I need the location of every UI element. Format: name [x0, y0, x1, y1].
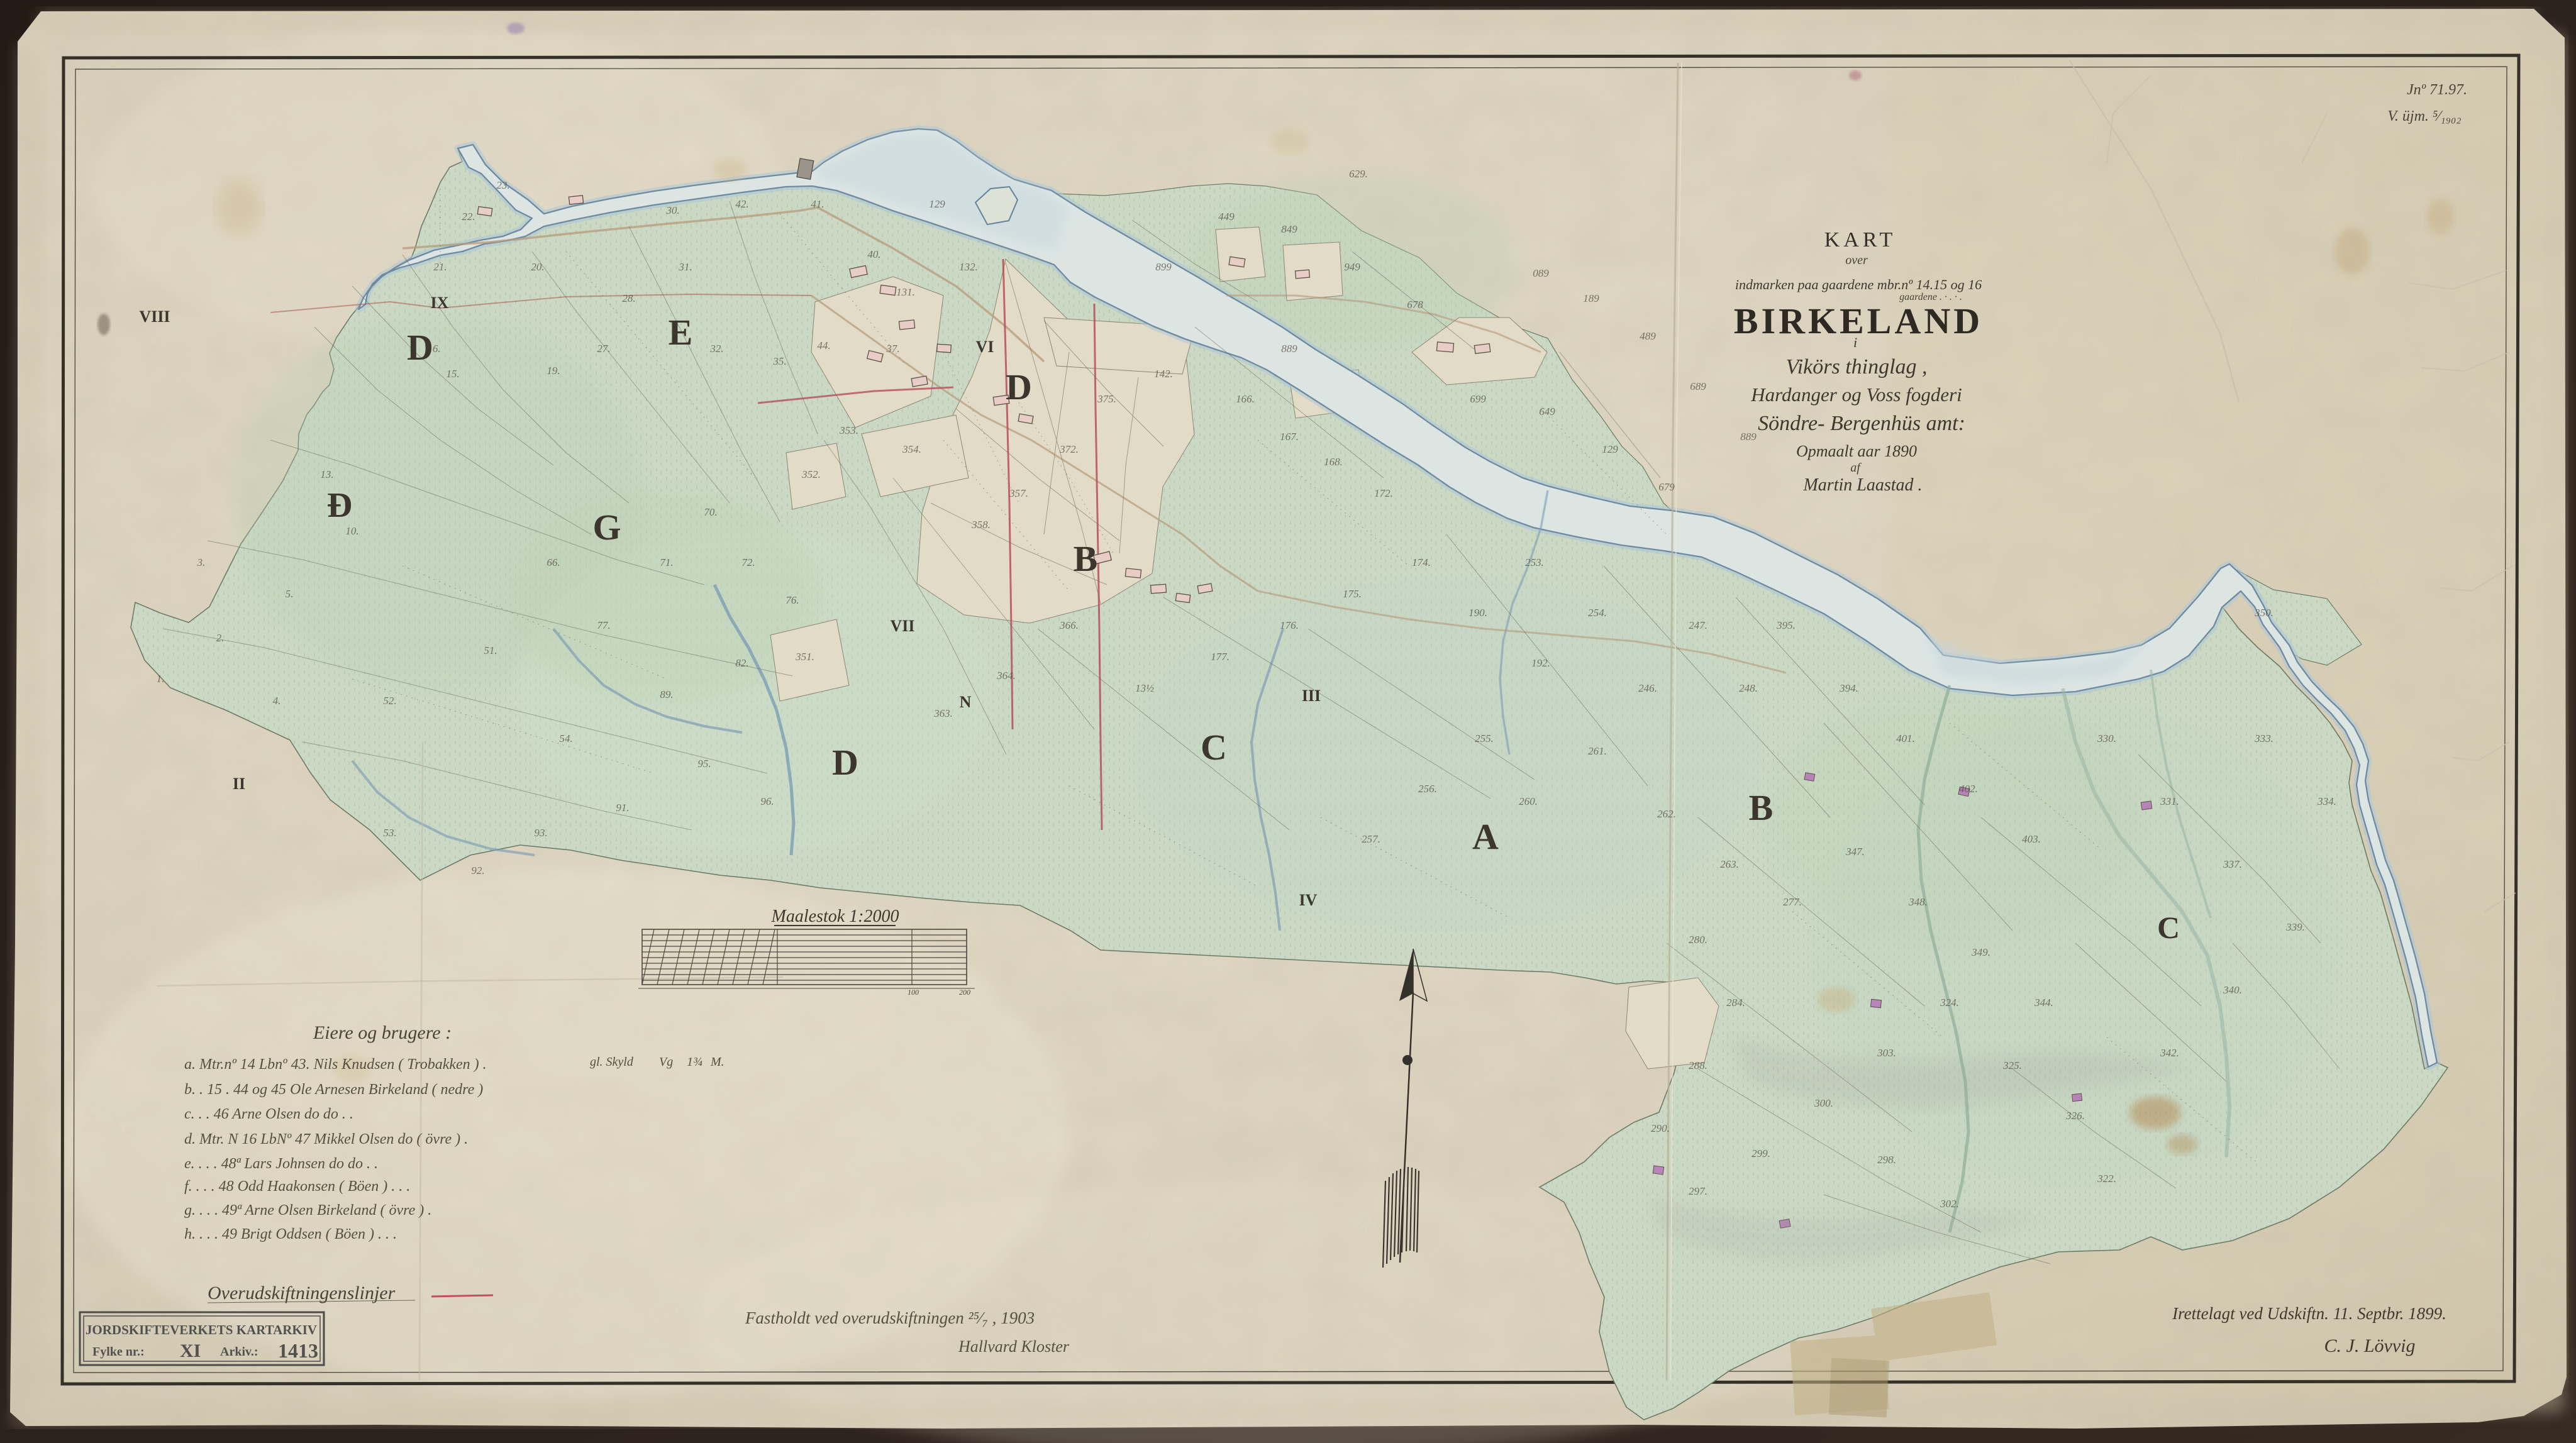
- svg-text:Arkiv.:: Arkiv.:: [220, 1345, 258, 1359]
- svg-text:1413: 1413: [278, 1339, 318, 1362]
- svg-text:KART: KART: [1824, 228, 1897, 252]
- svg-text:G: G: [592, 507, 621, 548]
- svg-text:2.: 2.: [216, 632, 225, 644]
- svg-text:324.: 324.: [1940, 997, 1959, 1009]
- svg-text:Vikörs thinglag ,: Vikörs thinglag ,: [1785, 355, 1927, 379]
- svg-text:71.: 71.: [660, 556, 673, 568]
- svg-text:20.: 20.: [531, 261, 544, 273]
- svg-text:Fylke nr.:: Fylke nr.:: [92, 1345, 145, 1359]
- svg-text:53.: 53.: [383, 827, 396, 839]
- svg-text:95.: 95.: [697, 758, 711, 770]
- svg-text:253.: 253.: [1525, 556, 1544, 568]
- svg-text:299.: 299.: [1752, 1147, 1770, 1159]
- svg-text:303.: 303.: [1877, 1047, 1896, 1059]
- svg-text:54.: 54.: [559, 733, 572, 744]
- svg-text:131.: 131.: [896, 286, 915, 298]
- svg-text:D: D: [407, 327, 433, 368]
- svg-text:403.: 403.: [2022, 833, 2041, 845]
- svg-text:248.: 248.: [1739, 682, 1758, 694]
- svg-text:Hallvard Kloster: Hallvard Kloster: [958, 1337, 1070, 1356]
- svg-text:1.: 1.: [157, 673, 165, 685]
- svg-text:VII: VII: [890, 617, 914, 635]
- svg-text:af: af: [1850, 461, 1862, 475]
- svg-text:449: 449: [1218, 211, 1235, 223]
- svg-text:Hardanger og Voss fogderi: Hardanger og Voss fogderi: [1750, 384, 1962, 406]
- svg-text:489: 489: [1640, 330, 1656, 342]
- svg-text:297.: 297.: [1689, 1185, 1707, 1197]
- svg-text:261.: 261.: [1588, 745, 1607, 757]
- svg-text:76.: 76.: [786, 594, 799, 606]
- svg-text:100: 100: [908, 988, 919, 997]
- svg-text:277.: 277.: [1783, 896, 1802, 908]
- svg-text:D: D: [832, 742, 858, 783]
- svg-text:72.: 72.: [741, 556, 755, 568]
- svg-text:32.: 32.: [709, 343, 723, 355]
- svg-text:284.: 284.: [1726, 997, 1745, 1009]
- svg-text:351.: 351.: [795, 651, 814, 663]
- svg-text:e. . . . 48ª: e. . . . 48ª Lars Johnsen do do . .: [184, 1156, 378, 1172]
- svg-text:176.: 176.: [1280, 619, 1299, 631]
- svg-text:IV: IV: [1299, 891, 1318, 909]
- svg-text:Maalestok 1:2000: Maalestok 1:2000: [771, 907, 899, 926]
- svg-text:372.: 372.: [1059, 443, 1079, 455]
- svg-text:699: 699: [1470, 393, 1486, 405]
- svg-text:889: 889: [1740, 431, 1757, 443]
- svg-text:93.: 93.: [534, 827, 547, 839]
- svg-text:342.: 342.: [2160, 1047, 2179, 1059]
- svg-text:331.: 331.: [2160, 795, 2179, 807]
- svg-text:91.: 91.: [616, 802, 629, 814]
- svg-text:10.: 10.: [345, 525, 358, 537]
- svg-text:13½: 13½: [1135, 682, 1154, 694]
- svg-text:337.: 337.: [2223, 858, 2242, 870]
- svg-text:V. üjm. ⁵⁄₁₉₀₂: V. üjm. ⁵⁄₁₉₀₂: [2387, 108, 2461, 124]
- svg-text:247.: 247.: [1689, 619, 1707, 631]
- svg-text:256.: 256.: [1418, 783, 1437, 795]
- svg-text:BIRKELAND: BIRKELAND: [1734, 301, 1983, 341]
- svg-text:D: D: [1006, 367, 1032, 407]
- svg-text:889: 889: [1281, 343, 1297, 355]
- svg-text:5.: 5.: [286, 588, 294, 600]
- svg-text:200: 200: [959, 988, 970, 997]
- svg-text:366.: 366.: [1059, 619, 1079, 631]
- svg-text:JORDSKIFTEVERKETS KARTARKIV: JORDSKIFTEVERKETS KARTARKIV: [86, 1322, 317, 1337]
- svg-text:129: 129: [929, 198, 945, 210]
- svg-text:Opmaalt aar 1890: Opmaalt aar 1890: [1796, 442, 1917, 460]
- svg-text:344.: 344.: [2034, 997, 2053, 1009]
- svg-text:325.: 325.: [2002, 1059, 2022, 1071]
- svg-text:C. J. Lövvig: C. J. Lövvig: [2324, 1335, 2416, 1356]
- svg-text:949: 949: [1344, 261, 1360, 273]
- svg-text:f. . . . 48: f. . . . 48 Odd Haakonsen ( Böen ) . . .: [184, 1178, 410, 1195]
- svg-text:B: B: [1749, 787, 1774, 828]
- svg-text:21.: 21.: [433, 261, 447, 273]
- svg-text:190.: 190.: [1468, 607, 1487, 619]
- svg-text:b. . 15 . 44 og: b. . 15 . 44 og 45 Ole Arnesen Birkeland…: [184, 1081, 483, 1098]
- svg-text:19.: 19.: [547, 365, 560, 377]
- svg-text:394.: 394.: [1839, 682, 1858, 694]
- svg-text:30.: 30.: [665, 204, 679, 216]
- svg-text:089: 089: [1533, 267, 1549, 279]
- svg-text:263.: 263.: [1720, 858, 1739, 870]
- svg-text:N: N: [960, 693, 972, 711]
- svg-text:174.: 174.: [1412, 556, 1431, 568]
- svg-text:255.: 255.: [1475, 733, 1494, 744]
- svg-text:649: 649: [1539, 406, 1555, 417]
- svg-text:4.: 4.: [273, 695, 281, 707]
- svg-text:Overudskiftningenslinjer: Overudskiftningenslinjer: [208, 1283, 396, 1303]
- svg-text:899: 899: [1155, 261, 1172, 273]
- svg-text:290.: 290.: [1651, 1122, 1670, 1134]
- svg-text:70.: 70.: [704, 506, 717, 518]
- svg-text:333.: 333.: [2254, 733, 2273, 744]
- svg-text:41.: 41.: [811, 198, 824, 210]
- svg-text:13.: 13.: [320, 468, 333, 480]
- svg-text:192.: 192.: [1531, 657, 1550, 669]
- svg-text:678: 678: [1407, 299, 1423, 311]
- svg-text:375.: 375.: [1097, 393, 1116, 405]
- svg-text:82.: 82.: [735, 657, 748, 669]
- svg-text:254.: 254.: [1588, 607, 1607, 619]
- svg-text:89.: 89.: [660, 688, 673, 700]
- svg-text:15.: 15.: [446, 368, 459, 380]
- svg-text:129: 129: [1602, 443, 1618, 455]
- svg-text:1¾: 1¾: [687, 1055, 702, 1069]
- svg-text:334.: 334.: [2317, 795, 2336, 807]
- svg-text:679: 679: [1658, 481, 1675, 493]
- svg-text:51.: 51.: [484, 644, 497, 656]
- svg-text:52.: 52.: [383, 695, 396, 707]
- svg-text:175.: 175.: [1343, 588, 1362, 600]
- svg-text:C: C: [2157, 910, 2180, 945]
- svg-text:300.: 300.: [1814, 1097, 1833, 1109]
- svg-text:VIII: VIII: [139, 307, 170, 326]
- svg-text:288.: 288.: [1689, 1059, 1707, 1071]
- svg-text:28.: 28.: [622, 292, 635, 304]
- svg-text:298.: 298.: [1877, 1154, 1896, 1166]
- svg-text:40.: 40.: [867, 248, 880, 260]
- svg-text:M.: M.: [710, 1055, 724, 1069]
- svg-text:II: II: [233, 775, 245, 793]
- svg-text:172.: 172.: [1374, 487, 1393, 499]
- svg-text:322.: 322.: [2097, 1173, 2116, 1185]
- svg-text:629.: 629.: [1349, 168, 1368, 180]
- svg-text:401.: 401.: [1896, 733, 1915, 744]
- svg-text:689: 689: [1690, 380, 1706, 392]
- svg-text:352.: 352.: [801, 468, 821, 480]
- svg-text:Vg: Vg: [659, 1055, 673, 1069]
- svg-text:gl. Skyld: gl. Skyld: [590, 1055, 634, 1069]
- svg-text:Eiere og brugere :: Eiere og brugere :: [313, 1022, 452, 1043]
- svg-text:Irettelagt ved Udskiftn. 11.: Irettelagt ved Udskiftn. 11. Septbr. 189…: [2172, 1304, 2446, 1323]
- svg-text:Jnº 71.97.: Jnº 71.97.: [2407, 82, 2467, 98]
- svg-text:849: 849: [1281, 223, 1297, 235]
- svg-text:Ð: Ð: [327, 486, 352, 525]
- svg-text:357.: 357.: [1009, 487, 1028, 499]
- svg-text:257.: 257.: [1362, 833, 1380, 845]
- svg-text:280.: 280.: [1689, 934, 1707, 946]
- svg-text:III: III: [1302, 687, 1321, 705]
- svg-text:Martin Laastad .: Martin Laastad .: [1802, 475, 1922, 495]
- svg-text:354.: 354.: [902, 443, 921, 455]
- svg-text:347.: 347.: [1845, 846, 1865, 858]
- svg-text:h. . . . 49: h. . . . 49 Brigt Oddsen ( Böen ) . . .: [184, 1226, 397, 1242]
- svg-text:340.: 340.: [2223, 984, 2242, 996]
- svg-text:262.: 262.: [1657, 808, 1676, 820]
- svg-text:363.: 363.: [933, 707, 953, 719]
- svg-text:353.: 353.: [839, 424, 858, 436]
- svg-text:31.: 31.: [678, 261, 692, 273]
- svg-text:132.: 132.: [959, 261, 978, 273]
- svg-text:358.: 358.: [971, 519, 991, 531]
- svg-text:a. Mtr.nº 14 Lbnº 43. Nils: a. Mtr.nº 14 Lbnº 43. Nils Knudsen ( Tro…: [184, 1056, 487, 1073]
- svg-text:168.: 168.: [1324, 456, 1343, 468]
- svg-text:Söndre- Bergenhüs amt:: Söndre- Bergenhüs amt:: [1758, 412, 1965, 435]
- svg-text:402.: 402.: [1959, 783, 1978, 795]
- svg-text:348.: 348.: [1908, 896, 1928, 908]
- svg-text:42.: 42.: [735, 198, 748, 210]
- svg-text:B: B: [1074, 538, 1098, 579]
- svg-text:77.: 77.: [597, 619, 610, 631]
- svg-text:A: A: [1472, 816, 1499, 857]
- svg-text:246.: 246.: [1638, 682, 1657, 694]
- svg-text:339.: 339.: [2285, 921, 2305, 933]
- svg-text:22.: 22.: [462, 211, 475, 223]
- svg-text:3.: 3.: [197, 556, 206, 568]
- svg-text:302.: 302.: [1940, 1198, 1959, 1210]
- svg-text:27.: 27.: [597, 343, 610, 355]
- svg-text:E: E: [669, 312, 693, 353]
- svg-text:35.: 35.: [772, 355, 786, 367]
- svg-text:189: 189: [1583, 292, 1599, 304]
- svg-text:167.: 167.: [1280, 431, 1299, 443]
- svg-text:d. Mtr. N 16 LbNº 47 Mik: d. Mtr. N 16 LbNº 47 Mikkel Olsen do ( ö…: [184, 1131, 468, 1147]
- svg-text:XI: XI: [180, 1341, 201, 1361]
- svg-text:Fastholdt ved overudskiftninge: Fastholdt ved overudskiftningen ²⁵⁄₇ , 1…: [745, 1308, 1035, 1327]
- svg-text:i: i: [1853, 334, 1857, 350]
- svg-text:c. . . 46: c. . . 46 Arne Olsen do do . .: [184, 1106, 353, 1122]
- svg-text:142.: 142.: [1154, 368, 1173, 380]
- svg-text:66.: 66.: [547, 556, 560, 568]
- svg-text:over: over: [1845, 253, 1868, 267]
- svg-text:23.: 23.: [496, 179, 509, 191]
- svg-text:g. . . . 49ª: g. . . . 49ª Arne Olsen Birkeland ( övre…: [184, 1202, 431, 1219]
- svg-text:92.: 92.: [471, 865, 484, 876]
- svg-text:44.: 44.: [817, 340, 830, 351]
- svg-text:IX: IX: [431, 294, 449, 312]
- svg-text:350.: 350.: [2254, 607, 2273, 619]
- svg-text:VI: VI: [976, 338, 994, 356]
- svg-text:166.: 166.: [1236, 393, 1255, 405]
- svg-text:177.: 177.: [1211, 651, 1230, 663]
- svg-text:395.: 395.: [1776, 619, 1796, 631]
- svg-text:364.: 364.: [996, 670, 1016, 682]
- svg-text:indmarken paa gaardene mbr.nº: indmarken paa gaardene mbr.nº 14.15 og 1…: [1735, 277, 1982, 292]
- svg-text:330.: 330.: [2097, 733, 2116, 744]
- svg-text:260.: 260.: [1519, 795, 1538, 807]
- svg-text:96.: 96.: [760, 795, 774, 807]
- svg-text:349.: 349.: [1971, 946, 1990, 958]
- svg-text:326.: 326.: [2065, 1110, 2085, 1122]
- svg-text:37.: 37.: [885, 343, 899, 355]
- svg-text:C: C: [1201, 727, 1227, 768]
